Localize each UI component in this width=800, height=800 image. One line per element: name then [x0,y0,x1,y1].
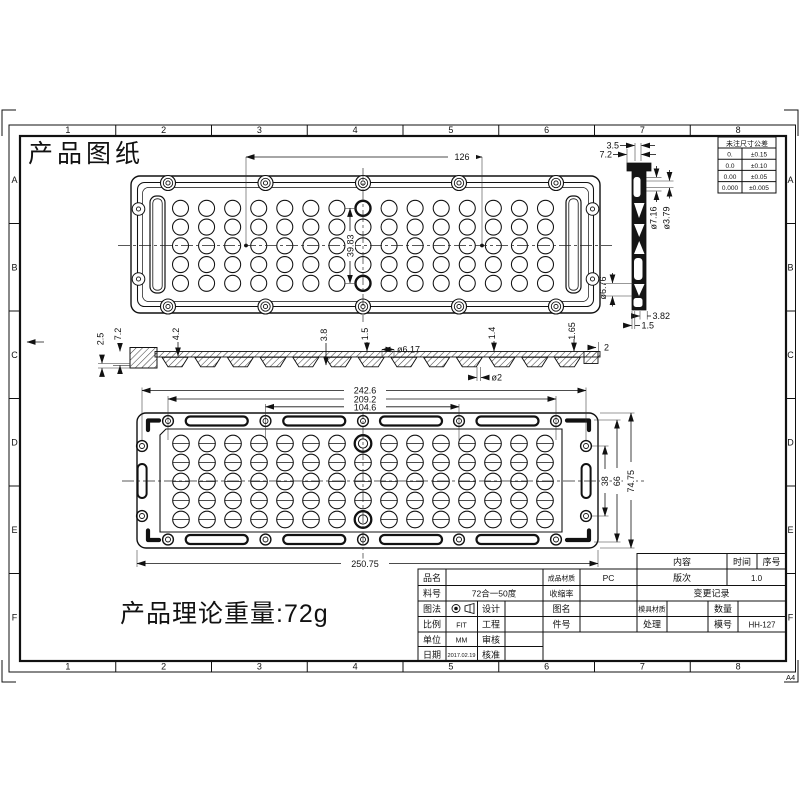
lens [485,257,501,273]
tb-time-label: 时间 [733,556,751,567]
lens [407,219,423,235]
mount-slot [283,417,345,426]
border-row-label: F [788,612,794,622]
lens [225,257,241,273]
lens [277,219,293,235]
lens [329,275,345,291]
lens [381,257,397,273]
tb-treatment-label: 处理 [643,619,661,630]
lens [329,200,345,216]
dim-side-8: 1.65 [567,322,577,340]
dim-side-5: 1.5 [360,328,370,341]
drawing-sheet: A4 1122334455667788AABBCCDDEEFF 产品图纸 未注尺… [0,0,800,800]
lens [433,219,449,235]
dim-bottom-3: 104.6 [354,402,377,412]
dim-end-5: ø6.76 [598,276,608,299]
dim-end-4: ø3.79 [662,206,672,229]
screw-hole [551,534,562,545]
corner-slot [567,531,589,541]
tb-date: 2017.02.19 [448,653,476,659]
lens-section-tooth [489,357,515,367]
screw-hole [581,441,592,452]
corner-slot [148,421,159,431]
lens [511,275,527,291]
tol-precision: 0.00 [724,174,737,181]
tolerance-title: 未注尺寸公差 [726,139,768,148]
dim-side-1: 2.5 [96,333,106,346]
lens-section-tooth [260,357,286,367]
top-view: 126 39.83 [118,151,612,323]
lens [199,275,215,291]
lens-section-tooth [293,357,319,367]
border-row-label: E [787,525,793,535]
dim-side-3: 4.2 [171,328,181,341]
tb-part-no: 72合一50度 [472,588,517,598]
lens [199,219,215,235]
tb-quantity-label: 数量 [714,603,732,614]
tol-precision: 0.000 [722,185,739,192]
tb-scale: FIT [456,622,467,629]
border-col-label: 6 [544,125,549,135]
lens [537,200,553,216]
border-row-label: D [11,437,18,447]
tb-shrinkage-label: 收缩率 [550,588,574,598]
tb-review-label: 审核 [482,634,500,645]
border-col-label: 6 [544,662,549,672]
tb-design-label: 设计 [482,603,500,614]
tb-part-no-label: 料号 [423,587,441,598]
lens [511,219,527,235]
tb-material-label: 成品材质 [548,574,575,583]
mount-slot [186,535,248,544]
lens [173,219,189,235]
dim-side-10: ø2 [492,373,503,383]
lens [485,275,501,291]
tb-item-no-label: 件号 [552,619,570,630]
dim-end-6: 3.82 [653,311,671,321]
tb-version: 1.0 [751,574,763,583]
tb-version-label: 版次 [673,572,691,583]
border-col-label: 4 [353,662,358,672]
lens [277,275,293,291]
tol-value: ±0.05 [751,174,768,181]
paper-size-label: A4 [786,673,795,682]
screw-hole [581,511,592,522]
bottom-view: 242.6 209.2 104.6 250.75 38 66 74.75 [122,386,645,569]
lens-section-tooth [522,357,548,367]
screw-hole [454,534,465,545]
border-col-label: 3 [257,662,262,672]
border-col-label: 1 [65,662,70,672]
lens [173,257,189,273]
mount-slot [283,535,345,544]
lens [303,257,319,273]
tb-content-label: 内容 [673,556,691,567]
dim-bottom-4: 250.75 [351,559,379,569]
tolerance-table: 未注尺寸公差 0. ±0.15 0.0 ±0.10 0.00 ±0.05 0.0… [718,137,776,193]
mount-slot [380,535,442,544]
lens-section-tooth [391,357,417,367]
lens [173,200,189,216]
lens [433,200,449,216]
side-section-view: 2.5 7.2 4.2 3.8 1.5 ø6.17 1.4 1.65 2 ø2 [96,322,610,382]
page-title: 产品图纸 [28,140,144,168]
lens [459,219,475,235]
lens [459,257,475,273]
border-col-label: 1 [65,125,70,135]
lens [225,275,241,291]
tb-change-record-label: 变更记录 [693,587,729,598]
border-col-label: 5 [448,662,453,672]
lens-section-tooth [358,357,384,367]
tb-drawing-name-label: 图名 [552,603,570,614]
lens-section-tooth [456,357,482,367]
border-row-label: B [11,262,17,272]
lens [485,200,501,216]
lens [329,219,345,235]
border-col-label: 3 [257,125,262,135]
border-row-label: A [787,175,793,185]
lens [381,275,397,291]
border-row-label: E [11,525,17,535]
lens [433,275,449,291]
screw-hole [260,534,271,545]
border-row-label: D [787,437,794,447]
border-row-label: F [12,612,18,622]
tb-unit: MM [456,638,468,645]
mount-slot [186,417,248,426]
lens [303,219,319,235]
screw-hole [137,441,148,452]
dim-bottom-7: 74.75 [626,470,636,493]
lens [251,200,267,216]
screw-hole [137,511,148,522]
lens-section-tooth [162,357,188,367]
border-row-label: C [11,350,18,360]
lens [277,257,293,273]
lens [407,257,423,273]
lens [199,257,215,273]
border-col-label: 7 [640,662,645,672]
mount-slot [477,535,539,544]
engineering-drawing: A4 1122334455667788AABBCCDDEEFF 产品图纸 未注尺… [0,0,800,800]
border-col-label: 5 [448,125,453,135]
tol-value: ±0.10 [751,163,768,170]
projection-symbol-icon [452,604,474,614]
dim-bottom-6: 66 [612,476,622,486]
lens [381,200,397,216]
lens [251,219,267,235]
dim-end-3: ø7.16 [649,206,659,229]
dim-side-9: 2 [604,343,609,353]
screw-hole [163,534,174,545]
lens-section-tooth [554,357,580,367]
lens [225,200,241,216]
dim-side-6: ø6.17 [397,345,420,355]
dim-end-2: 7.2 [599,150,612,160]
tb-product-name-label: 品名 [423,572,441,583]
lens [277,200,293,216]
tol-value: ±0.005 [749,185,769,192]
corner-slot [567,421,589,431]
lens-section-tooth [227,357,253,367]
dim-top-width: 126 [454,152,469,162]
border-col-label: 4 [353,125,358,135]
lens-section-tooth [195,357,221,367]
border-col-label: 2 [161,125,166,135]
border-row-label: B [787,262,793,272]
lens [173,275,189,291]
lens [433,257,449,273]
lens [251,257,267,273]
weight-note: 产品理论重量:72g [120,600,329,628]
tol-precision: 0.0 [725,163,734,170]
border-col-label: 8 [736,125,741,135]
lens [329,257,345,273]
tb-mold-no: HH-127 [749,620,776,629]
mount-slot [477,417,539,426]
dim-side-2: 7.2 [113,328,123,341]
lens [407,275,423,291]
tb-approve-label: 核准 [482,649,500,660]
tb-scale-label: 比例 [423,619,441,630]
lens [407,200,423,216]
dim-top-pitch: 39.83 [346,235,356,258]
tb-material: PC [603,573,615,583]
tb-date-label: 日期 [423,650,441,660]
end-section-view: 3.5 7.2 ø7.16 ø3.79 ø6.76 3.82 1.5 [598,141,674,331]
lens [537,275,553,291]
lens [537,257,553,273]
tol-precision: 0. [727,152,733,159]
border-row-label: A [11,175,17,185]
border-col-label: 7 [640,125,645,135]
tb-unit-label: 单位 [423,634,441,645]
border-row-label: C [787,350,794,360]
lens [459,200,475,216]
lens [251,275,267,291]
lens [511,257,527,273]
lens [485,219,501,235]
border-col-label: 8 [736,662,741,672]
tb-projection-label: 图法 [423,603,441,614]
dim-end-7: 1.5 [642,321,655,331]
mount-slot [380,417,442,426]
lens-section-tooth [326,357,352,367]
lens [225,219,241,235]
dim-side-7: 1.4 [487,327,497,340]
tb-mold-material-label: 模具材质 [638,605,665,614]
drawing-frame: A4 [2,110,798,682]
title-block: 内容 时间 序号 品名 成品材质 PC 版次 1.0 料号 72合一50度 收缩… [418,554,786,662]
tol-value: ±0.15 [751,152,768,159]
tb-mold-no-label: 模号 [714,620,732,630]
lens [511,200,527,216]
tb-engineering-label: 工程 [482,620,500,630]
tb-serial-label: 序号 [762,556,780,567]
dim-bottom-5: 38 [600,476,610,486]
lens [381,219,397,235]
border-band: 1122334455667788AABBCCDDEEFF [9,125,796,672]
lens [537,219,553,235]
lens [303,275,319,291]
border-col-label: 2 [161,662,166,672]
corner-slot [148,531,159,541]
lens-section-tooth [424,357,450,367]
lens [303,200,319,216]
dim-side-4: 3.8 [319,329,329,342]
lens [459,275,475,291]
lens [199,200,215,216]
